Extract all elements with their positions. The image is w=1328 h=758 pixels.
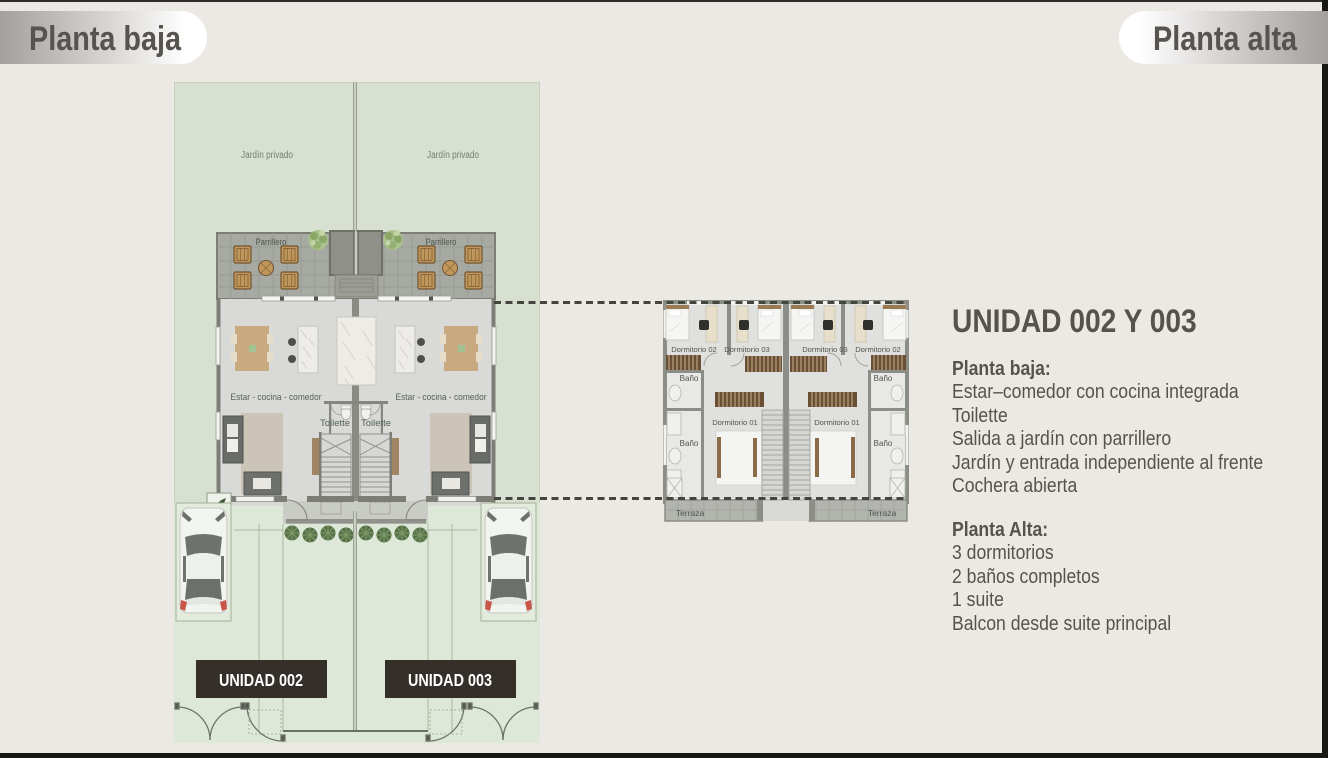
svg-text:Baño: Baño: [680, 439, 699, 448]
svg-text:Jardín privado: Jardín privado: [427, 150, 479, 161]
svg-text:Baño: Baño: [874, 439, 893, 448]
svg-text:Dormitorio 03: Dormitorio 03: [724, 345, 770, 354]
svg-text:Dormitorio 02: Dormitorio 02: [671, 345, 717, 354]
svg-text:Dormitorio 02: Dormitorio 02: [855, 345, 901, 354]
svg-text:Dormitorio 03: Dormitorio 03: [802, 345, 848, 354]
svg-text:UNIDAD 002: UNIDAD 002: [219, 670, 303, 690]
svg-text:UNIDAD 003: UNIDAD 003: [408, 670, 492, 690]
svg-text:Estar - cocina - comedor: Estar - cocina - comedor: [396, 392, 487, 403]
svg-text:Toilette: Toilette: [320, 418, 350, 429]
svg-text:Toilette: Toilette: [361, 418, 391, 429]
svg-text:Baño: Baño: [874, 374, 893, 383]
svg-text:Dormitorio 01: Dormitorio 01: [712, 418, 758, 427]
svg-text:Terraza: Terraza: [868, 508, 897, 518]
svg-text:Dormitorio 01: Dormitorio 01: [814, 418, 860, 427]
svg-text:Jardín privado: Jardín privado: [241, 150, 293, 161]
svg-text:Terraza: Terraza: [676, 508, 705, 518]
svg-text:Estar - cocina - comedor: Estar - cocina - comedor: [231, 392, 322, 403]
svg-text:Baño: Baño: [680, 374, 699, 383]
